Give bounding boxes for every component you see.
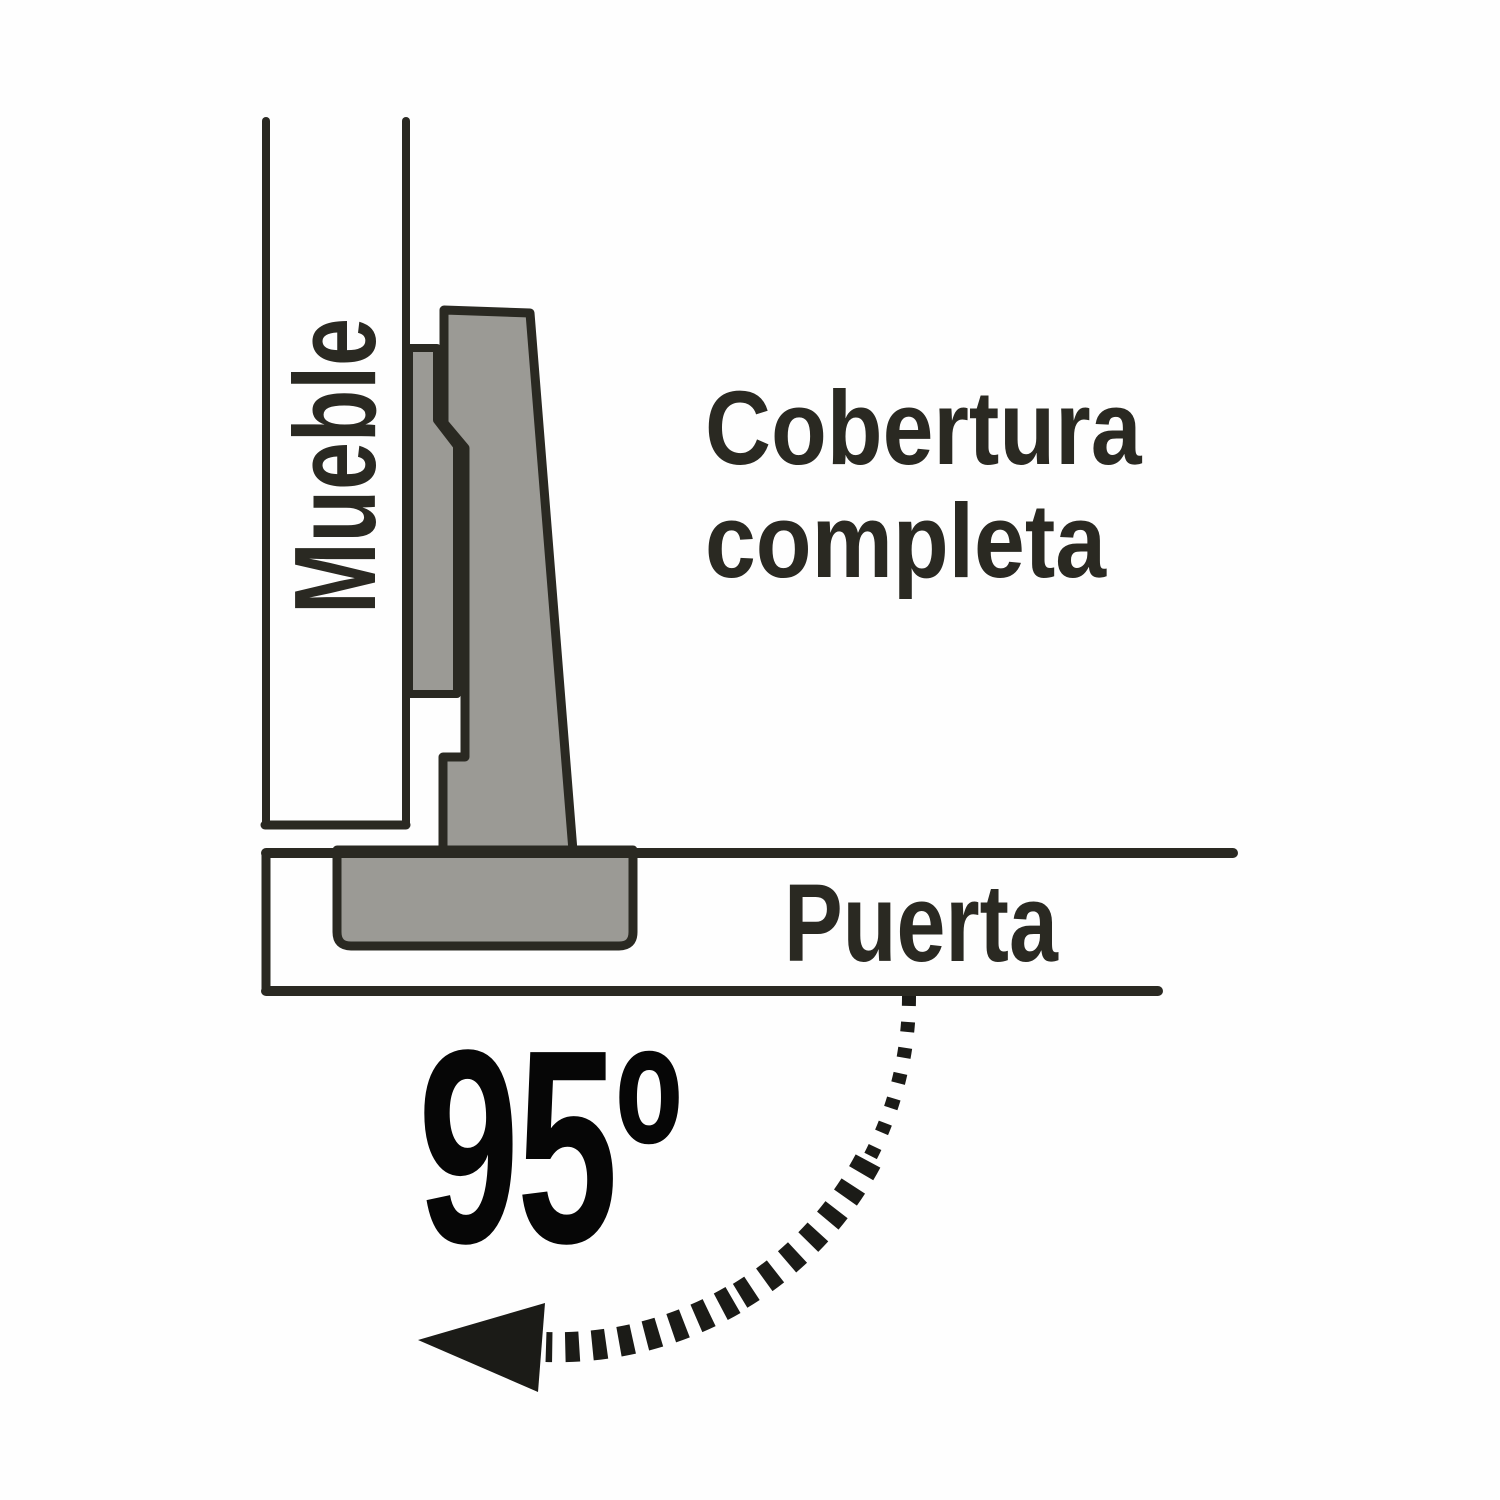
- rotation-arc-segment-start: [868, 996, 909, 1161]
- hinge-diagram: Mueble Cobertura completa Puerta 95º: [0, 0, 1500, 1500]
- hinge-cup-shape: [337, 850, 633, 946]
- rotation-arc-segment-middle: [733, 1161, 868, 1300]
- coverage-type-label: Cobertura completa: [705, 373, 1142, 599]
- cabinet-label: Mueble: [277, 318, 393, 614]
- hinge-arm-shape: [443, 310, 573, 851]
- rotation-arrowhead-icon: [418, 1303, 545, 1392]
- rotation-arc-segment-end: [546, 1300, 733, 1347]
- coverage-type-label-line1: Cobertura: [705, 373, 1142, 486]
- coverage-type-label-line2: completa: [705, 486, 1142, 599]
- door-label: Puerta: [784, 869, 1058, 979]
- opening-angle-label: 95º: [418, 1009, 679, 1285]
- diagram-canvas: [0, 0, 1500, 1500]
